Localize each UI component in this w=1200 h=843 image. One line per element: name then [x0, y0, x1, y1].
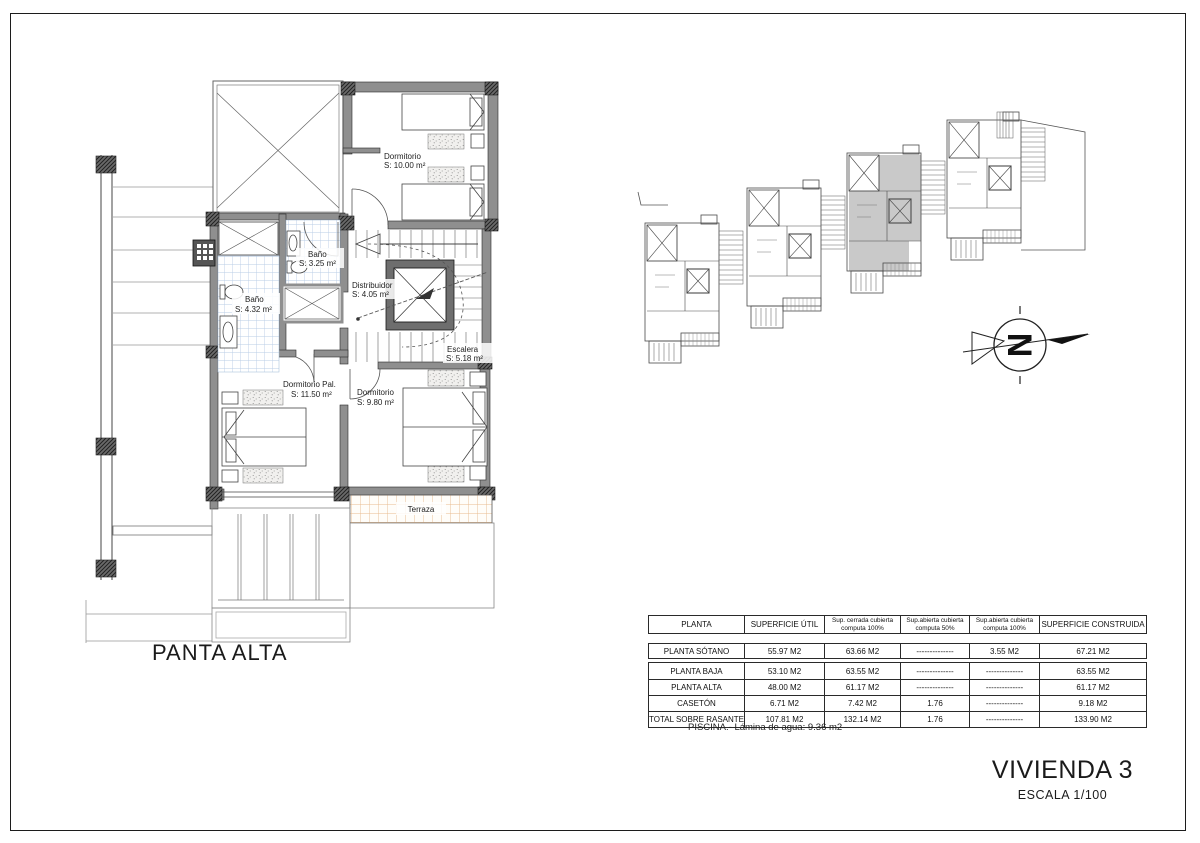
- utility-x-box: [219, 222, 278, 255]
- bed-dormitorio-back: [403, 370, 487, 482]
- cell: 63.66 M2: [825, 644, 901, 658]
- areas-table-sotano: PLANTA SÓTANO 55.97 M2 63.66 M2 --------…: [648, 643, 1147, 659]
- cell: --------------: [970, 663, 1040, 679]
- label-dormitorio-top: Dormitorio: [384, 152, 421, 161]
- cell: 61.17 M2: [825, 679, 901, 695]
- header-sup-abierta-50: Sup.abierta cubierta computa 50%: [901, 616, 970, 633]
- cell: 9.18 M2: [1040, 695, 1146, 711]
- label-bano-large-area: S: 4.32 m²: [235, 305, 272, 314]
- label-distribuidor-area: S: 4.05 m²: [352, 290, 389, 299]
- areas-table-main: PLANTA BAJA 53.10 M2 63.55 M2 ----------…: [648, 662, 1147, 728]
- cell: CASETÓN: [649, 695, 745, 711]
- window-lines: [222, 492, 336, 497]
- north-arrow-icon: N: [963, 306, 1090, 384]
- label-dormitorio-back-area: S: 9.80 m²: [357, 398, 394, 407]
- highlighted-unit: [847, 145, 945, 293]
- cell: 1.76: [901, 711, 970, 727]
- label-terraza: Terraza: [408, 505, 435, 514]
- plan-title: PANTA ALTA: [152, 640, 288, 666]
- label-dormitorio-top-area: S: 10.00 m²: [384, 161, 426, 170]
- boundary-fence: [96, 155, 116, 580]
- cell: 3.55 M2: [970, 644, 1040, 658]
- cell: 133.90 M2: [1040, 711, 1146, 727]
- north-letter: N: [1000, 333, 1038, 358]
- areas-table-header: PLANTA SUPERFICIE ÚTIL Sup. cerrada cubi…: [648, 615, 1147, 634]
- table-row: PLANTA ALTA 48.00 M2 61.17 M2 ----------…: [649, 679, 1146, 695]
- lower-deck: [212, 508, 350, 642]
- label-distribuidor: Distribuidor: [352, 281, 393, 290]
- cell: --------------: [901, 663, 970, 679]
- pool-footnote: PISCINA.- Lámina de agua: 9.36 m2: [688, 722, 842, 733]
- header-superficie-construida: SUPERFICIE CONSTRUIDA: [1040, 616, 1146, 633]
- elevator-shaft: [386, 260, 454, 330]
- label-escalera: Escalera: [447, 345, 479, 354]
- header-sup-abierta-100: Sup.abierta cubierta computa 100%: [970, 616, 1040, 633]
- cell: 7.42 M2: [825, 695, 901, 711]
- cell: 61.17 M2: [1040, 679, 1146, 695]
- label-bano-small: Baño: [308, 250, 327, 259]
- header-planta: PLANTA: [649, 616, 745, 633]
- cell: --------------: [901, 644, 970, 658]
- label-dormitorio-back: Dormitorio: [357, 388, 394, 397]
- cell: --------------: [970, 695, 1040, 711]
- cell: PLANTA BAJA: [649, 663, 745, 679]
- label-escalera-area: S: 5.18 m²: [446, 354, 483, 363]
- table-row: CASETÓN 6.71 M2 7.42 M2 1.76 -----------…: [649, 695, 1146, 711]
- sheet-scale: ESCALA 1/100: [980, 788, 1145, 802]
- table-row: PLANTA SÓTANO 55.97 M2 63.66 M2 --------…: [649, 644, 1146, 658]
- label-bano-large: Baño: [245, 295, 264, 304]
- cell: --------------: [901, 679, 970, 695]
- roof-void-x: [213, 81, 343, 216]
- table-row: PLANTA BAJA 53.10 M2 63.55 M2 ----------…: [649, 663, 1146, 679]
- cell: 63.55 M2: [1040, 663, 1146, 679]
- cell: 53.10 M2: [745, 663, 825, 679]
- electrical-panel: [193, 240, 215, 266]
- cell: PLANTA SÓTANO: [649, 644, 745, 658]
- shower-tray: [282, 285, 342, 322]
- header-superficie-util: SUPERFICIE ÚTIL: [745, 616, 825, 633]
- cell: --------------: [970, 679, 1040, 695]
- label-dormitorio-pal-area: S: 11.50 m²: [291, 390, 332, 399]
- cell: PLANTA ALTA: [649, 679, 745, 695]
- sheet-title: VIVIENDA 3: [980, 756, 1145, 785]
- cell: 48.00 M2: [745, 679, 825, 695]
- cell: 67.21 M2: [1040, 644, 1146, 658]
- site-key-plan: [638, 112, 1085, 363]
- bed-dormitorio-pal: [222, 390, 306, 483]
- title-block: VIVIENDA 3 ESCALA 1/100: [980, 756, 1145, 802]
- label-bano-small-area: S: 3.25 m²: [299, 259, 336, 268]
- cell: 55.97 M2: [745, 644, 825, 658]
- label-dormitorio-pal: Dormitorio Pal.: [283, 380, 336, 389]
- main-floor-plan: Dormitorio S: 10.00 m² Baño S: 3.25 m² B…: [86, 81, 498, 643]
- header-sup-cerrada: Sup. cerrada cubierta computa 100%: [825, 616, 901, 633]
- cell: --------------: [970, 711, 1040, 727]
- cell: 63.55 M2: [825, 663, 901, 679]
- cell: 6.71 M2: [745, 695, 825, 711]
- cell: 1.76: [901, 695, 970, 711]
- drawing-sheet: Dormitorio S: 10.00 m² Baño S: 3.25 m² B…: [0, 0, 1200, 843]
